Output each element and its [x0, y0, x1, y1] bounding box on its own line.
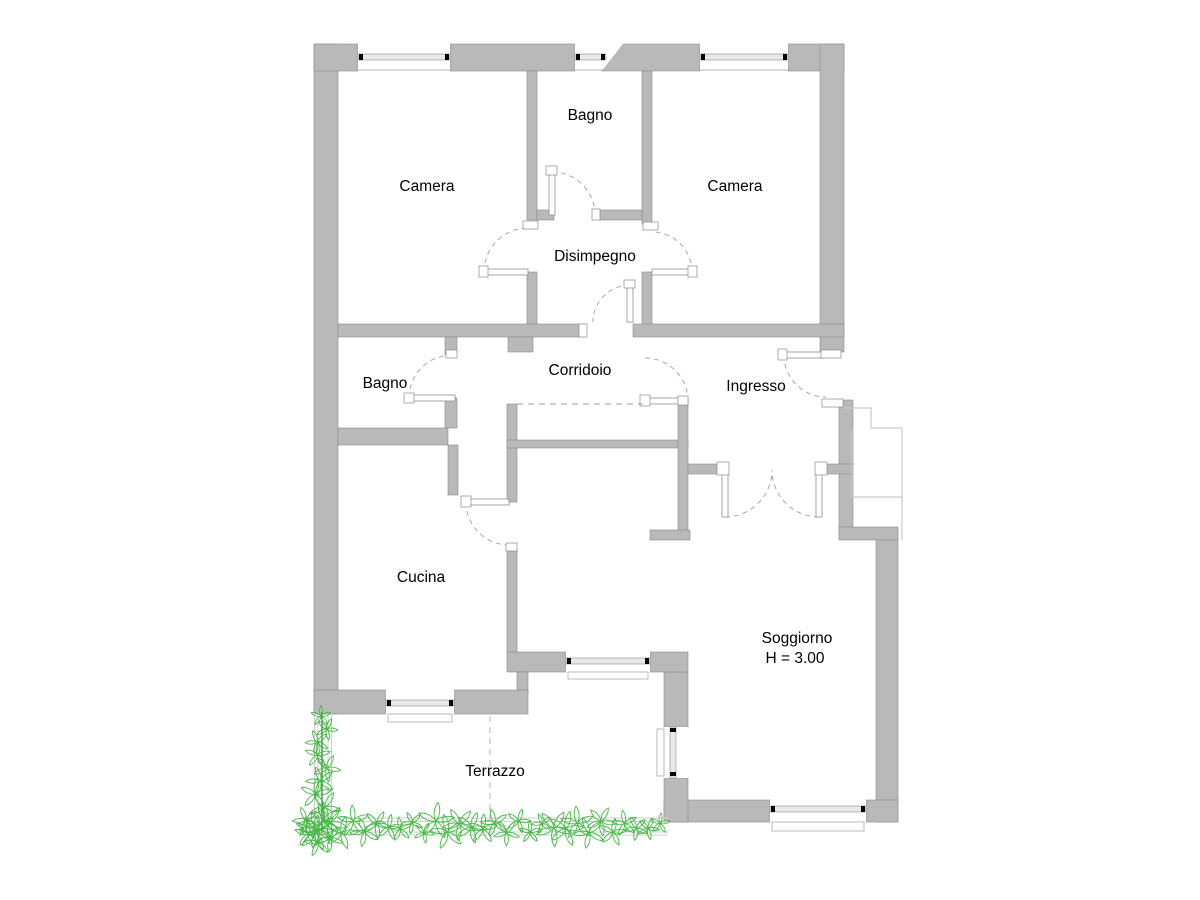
room-label-disimpegno: Disimpegno [554, 248, 636, 265]
hedge-leaves [288, 706, 674, 861]
window-soggiorno-west [657, 727, 688, 778]
wall-segment [338, 324, 585, 337]
room-label-soggiorno: Soggiorno [762, 630, 833, 647]
floor-plan: Camera Bagno Camera Disimpegno Bagno Cor… [0, 0, 1200, 900]
wall-segment [507, 440, 688, 448]
wall-segment [664, 778, 688, 822]
wall-segment [507, 404, 517, 502]
room-label-soggiorno-height: H = 3.00 [765, 650, 824, 667]
wall-segment [527, 71, 537, 220]
wall-segment [508, 337, 533, 352]
wall-segment [866, 800, 898, 822]
door-entrance [778, 349, 843, 407]
room-label-ingresso: Ingresso [726, 378, 785, 395]
window-soggiorno-arm [566, 652, 650, 679]
room-label-bagno-lower: Bagno [363, 375, 408, 392]
wall-segment [450, 44, 575, 71]
door-disimpegno-corridoio [579, 280, 635, 337]
wall-segment [445, 398, 457, 428]
door-soggiorno-french-left [717, 462, 772, 517]
room-label-cucina: Cucina [397, 569, 446, 586]
wall-segment [507, 548, 517, 652]
door-camera-left [479, 221, 538, 277]
window-camera-left [358, 44, 450, 71]
window-camera-right [700, 44, 788, 71]
wall-segment [876, 540, 898, 822]
room-label-corridoio: Corridoio [549, 362, 612, 379]
window-soggiorno-south [770, 800, 866, 831]
wall-segment [820, 44, 844, 352]
wall-segment [642, 71, 652, 224]
wall-segment [454, 690, 528, 714]
terrazzo-hedge [288, 706, 674, 861]
door-cucina [461, 496, 517, 551]
wall-segment [598, 210, 642, 220]
wall-segment [338, 428, 448, 445]
wall-segment [633, 324, 844, 337]
wall-segment [314, 690, 386, 714]
wall-segment [650, 530, 690, 540]
wall-segment [678, 404, 688, 534]
wall-segment [314, 44, 338, 714]
wall-segment [507, 652, 566, 672]
room-label-bagno-top: Bagno [568, 107, 613, 124]
door-bagno-top [546, 166, 600, 220]
door-corridoio-ingresso [640, 358, 688, 406]
room-label-camera-left: Camera [399, 178, 455, 195]
door-soggiorno-french-right [772, 462, 827, 517]
doors [404, 166, 843, 551]
room-label-terrazzo: Terrazzo [465, 763, 524, 780]
wall-segment [664, 672, 688, 727]
room-label-camera-right: Camera [707, 178, 763, 195]
wall-segment [839, 527, 898, 540]
wall-segment [314, 44, 358, 71]
wall-segment [650, 652, 688, 672]
wall-segment [448, 445, 458, 495]
window-cucina [386, 690, 454, 722]
door-bagno-lower [404, 350, 457, 403]
door-camera-right [643, 222, 697, 277]
